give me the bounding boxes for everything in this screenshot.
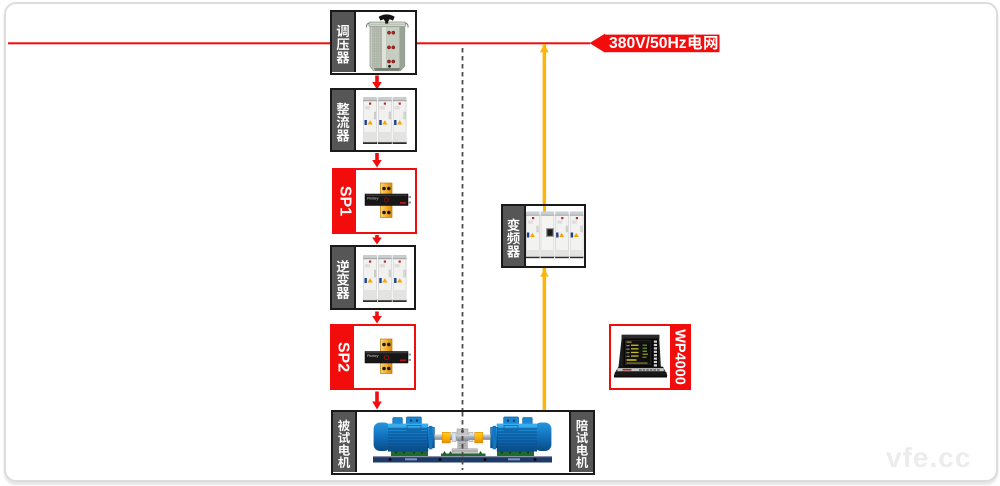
svg-text:SP1: SP1: [337, 186, 354, 216]
svg-text:SP2: SP2: [335, 342, 352, 372]
svg-text:380V/50Hz: 380V/50Hz: [609, 35, 687, 52]
svg-text:WP4000: WP4000: [672, 329, 688, 385]
svg-text:Pwrlwy: Pwrlwy: [367, 354, 379, 358]
svg-text:Pwrlwy: Pwrlwy: [367, 197, 379, 201]
